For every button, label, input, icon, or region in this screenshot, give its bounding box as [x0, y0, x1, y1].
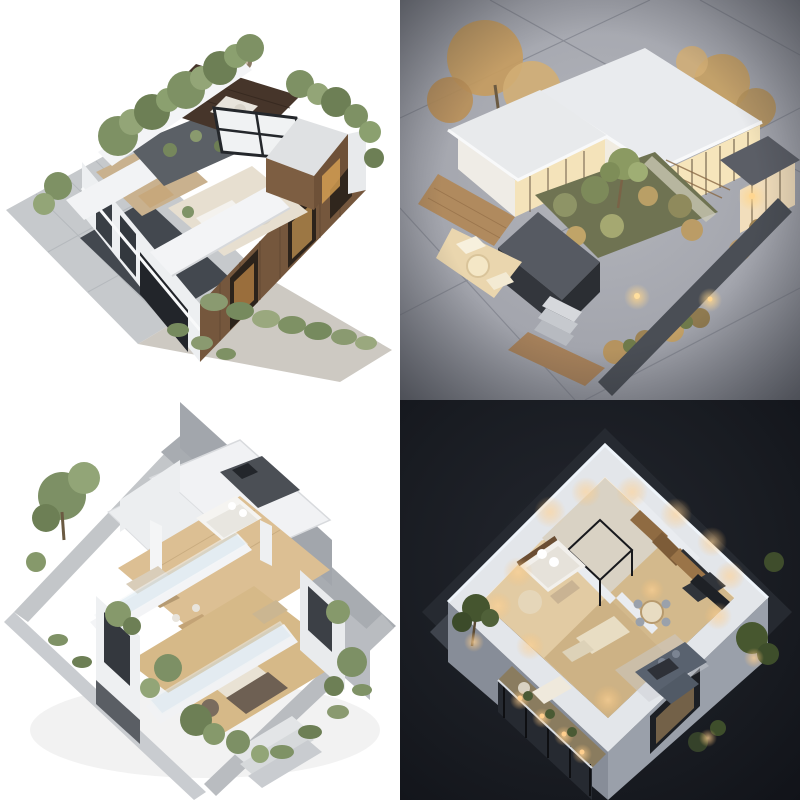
image-grid [0, 0, 800, 800]
panel-bottom-right [400, 400, 800, 800]
render-house-dusk-icon [400, 0, 800, 400]
render-villa-day-icon [0, 0, 400, 400]
panel-top-right [400, 0, 800, 400]
render-floorplan-night-icon [400, 400, 800, 800]
vignette [400, 0, 800, 400]
render-cutaway-day-icon [0, 400, 400, 800]
panel-top-left [0, 0, 400, 400]
panel-bottom-left [0, 400, 400, 800]
